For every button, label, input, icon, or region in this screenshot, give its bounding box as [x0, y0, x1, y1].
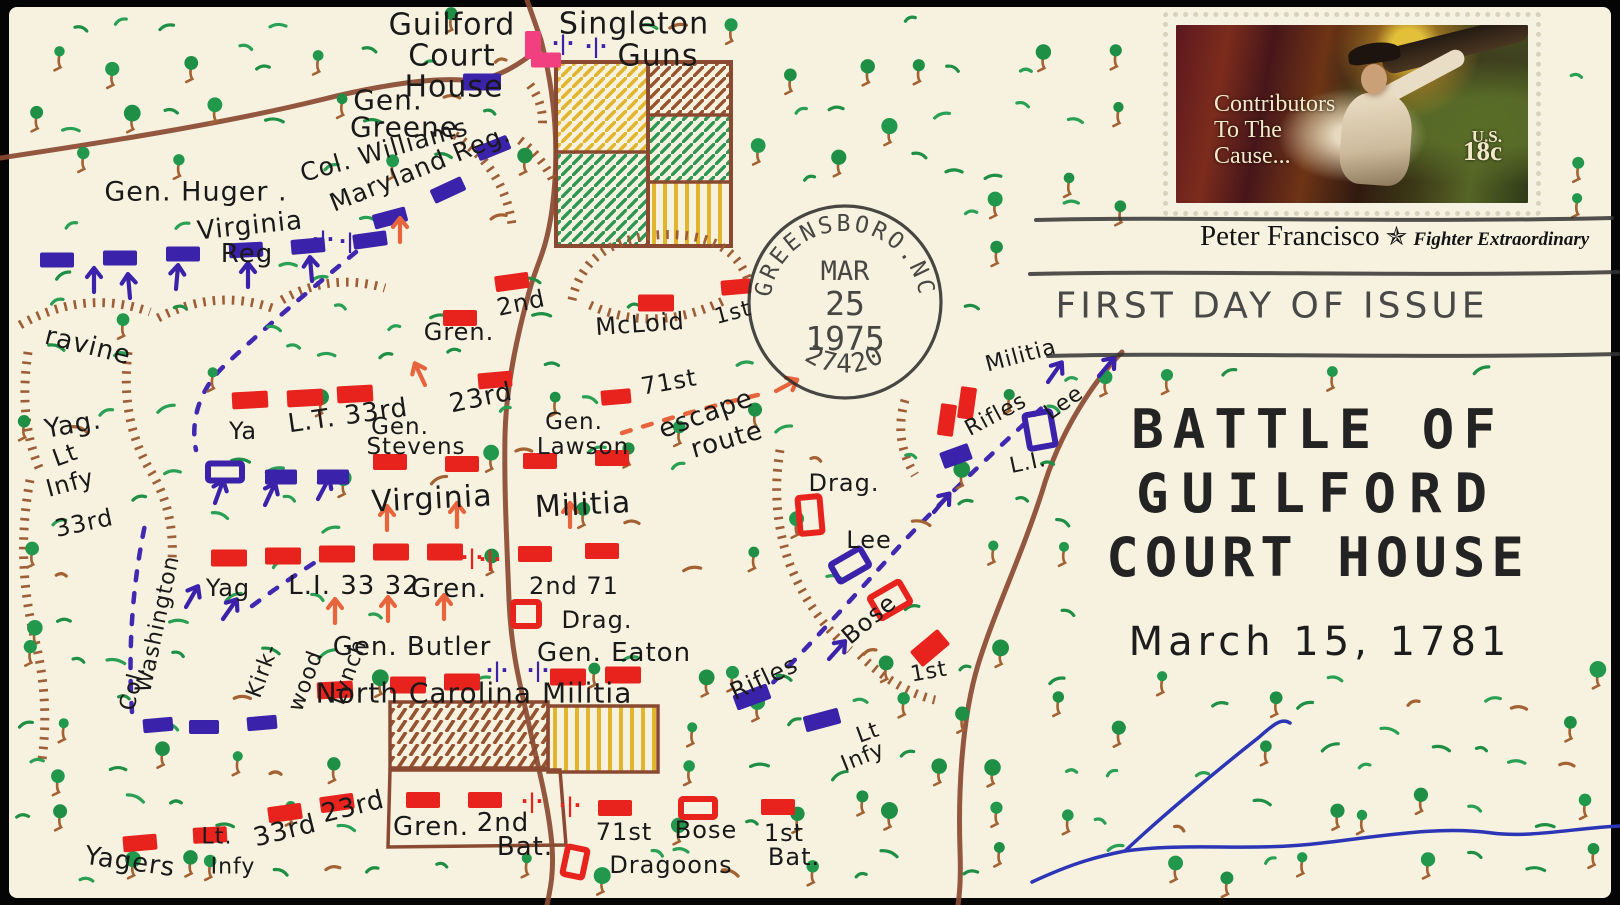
tree-icon	[1357, 810, 1368, 821]
postmark-day: 25	[825, 284, 865, 323]
tree-icon	[1220, 871, 1233, 884]
tree-icon	[1421, 852, 1435, 866]
tree-icon	[726, 666, 739, 679]
unit-marker-red	[337, 385, 374, 404]
first-day-slogan: FIRST DAY OF ISSUE	[1056, 286, 1489, 327]
tree-icon	[594, 867, 611, 884]
unit-marker-red	[477, 371, 512, 390]
tree-icon	[994, 842, 1005, 853]
tree-icon	[831, 150, 846, 165]
unit-marker-blue	[166, 247, 200, 262]
tree-icon	[988, 192, 1003, 207]
tree-icon	[77, 147, 89, 159]
tree-icon	[751, 138, 766, 153]
tree-icon	[54, 46, 64, 56]
tree-icon	[725, 18, 738, 31]
tree-icon	[931, 758, 947, 774]
tree-icon	[856, 790, 868, 802]
unit-marker-red	[317, 681, 354, 700]
unit-marker-red	[232, 391, 269, 410]
tree-icon	[990, 241, 1003, 254]
postmark-month: MAR	[821, 256, 871, 287]
cachet-title-line2: GUILFORD	[1038, 462, 1598, 526]
cachet-date: March 15, 1781	[1129, 619, 1512, 665]
unit-marker-red	[605, 667, 641, 684]
cachet-title-line3: COURT HOUSE	[1038, 526, 1598, 590]
tree-icon	[233, 751, 243, 761]
unit-marker-blue	[229, 242, 264, 259]
tree-icon	[1112, 721, 1126, 735]
tree-icon	[1297, 852, 1307, 862]
cachet-title-line1: BATTLE OF	[1038, 398, 1598, 462]
tree-icon	[576, 502, 590, 516]
tree-icon	[184, 56, 198, 70]
stamp-artwork: Contributors To The Cause... U.S. 18c	[1176, 25, 1528, 203]
artillery-icon: ·|·	[552, 31, 575, 55]
postage-stamp: Contributors To The Cause... U.S. 18c	[1163, 12, 1541, 216]
tree-icon	[1053, 691, 1064, 702]
tree-icon	[1414, 788, 1428, 802]
tree-icon	[1161, 369, 1173, 381]
unit-marker-red	[444, 674, 480, 691]
tree-icon	[386, 154, 399, 167]
stamp-title: Contributors To The Cause...	[1214, 91, 1335, 169]
tree-icon	[51, 769, 65, 783]
tree-icon	[27, 620, 43, 636]
unit-marker-blue	[40, 253, 74, 268]
stamp-denomination: U.S. 18c	[1463, 129, 1502, 159]
tree-icon	[155, 741, 170, 756]
unit-marker-blue	[463, 74, 501, 91]
tree-icon	[1572, 157, 1584, 169]
tree-icon	[207, 97, 222, 112]
stamp-subject-name: Peter Francisco	[1200, 220, 1380, 252]
tree-icon	[1564, 716, 1577, 729]
unit-marker-red	[287, 389, 324, 408]
artillery-icon: ·|·	[339, 229, 362, 253]
tree-icon	[550, 392, 561, 403]
unit-marker-red	[406, 792, 440, 808]
postmark-year: 1975	[805, 319, 884, 358]
stamp-title-line1: Contributors	[1214, 91, 1335, 117]
tree-icon	[522, 853, 532, 863]
tree-icon	[372, 669, 389, 686]
tree-icon	[881, 802, 898, 819]
tree-icon	[1168, 856, 1183, 871]
artillery-icon: ·|·	[312, 227, 335, 251]
tree-icon	[784, 69, 797, 82]
tree-icon	[1572, 193, 1582, 203]
unit-marker-red	[193, 826, 228, 844]
unit-marker-red	[720, 278, 751, 296]
unit-marker-red	[550, 669, 586, 686]
tree-icon	[984, 759, 1001, 776]
tree-icon	[1270, 691, 1283, 704]
figure-face	[1361, 64, 1387, 94]
first-day-cover: ·|··|··|··|··|··|··|··|··|··|· GREENSBOR…	[0, 0, 1620, 905]
tree-icon	[313, 50, 324, 61]
tree-icon	[337, 94, 348, 105]
tree-icon	[1062, 809, 1074, 821]
unit-marker-red	[595, 450, 629, 466]
tree-icon	[1330, 804, 1344, 818]
unit-marker-red	[585, 543, 619, 559]
unit-marker-red	[373, 454, 407, 470]
unit-marker-red	[598, 800, 632, 816]
unit-marker-red	[445, 456, 479, 472]
unit-marker-red	[122, 834, 157, 853]
tree-icon	[1588, 843, 1600, 855]
tree-icon	[1110, 44, 1122, 56]
unit-marker-blue	[265, 470, 297, 485]
unit-marker-red	[427, 544, 463, 561]
tree-icon	[105, 62, 119, 76]
tree-icon	[24, 640, 37, 653]
tree-icon	[1064, 173, 1075, 184]
tree-icon	[445, 7, 458, 20]
tree-icon	[748, 547, 759, 558]
tree-icon	[59, 718, 69, 728]
tree-icon	[483, 445, 499, 461]
unit-marker-red	[600, 388, 631, 406]
unit-marker-red	[373, 544, 409, 561]
tree-icon	[1113, 102, 1123, 112]
tree-icon	[913, 59, 925, 71]
tree-icon	[1327, 366, 1338, 377]
tree-icon	[861, 59, 875, 73]
tree-icon	[806, 860, 818, 872]
stamp-title-line2: To The	[1214, 117, 1335, 143]
tree-icon	[18, 415, 30, 427]
unit-marker-red	[638, 295, 674, 312]
farm-fields-top	[556, 62, 731, 246]
tree-icon	[588, 663, 600, 675]
tree-icon	[517, 148, 533, 164]
tree-icon	[1004, 389, 1015, 400]
tree-icon	[1036, 44, 1051, 59]
tree-icon	[988, 540, 998, 550]
tree-icon	[327, 757, 340, 770]
artillery-icon: ·|·	[585, 34, 608, 58]
unit-marker-red	[319, 546, 355, 563]
unit-marker-red	[518, 546, 552, 562]
unit-marker-blue	[189, 720, 219, 734]
artillery-icon: ·|·	[486, 658, 509, 682]
tree-icon	[53, 804, 67, 818]
artillery-icon: ·|·	[559, 793, 582, 817]
artillery-icon: ·|·	[521, 789, 544, 813]
tree-icon	[125, 851, 141, 867]
tree-icon	[687, 722, 697, 732]
tree-icon	[683, 760, 695, 772]
stamp-title-line3: Cause...	[1214, 143, 1335, 169]
tree-icon	[183, 850, 198, 865]
tree-icon	[881, 118, 897, 134]
unit-marker-blue	[103, 251, 137, 266]
tree-icon	[673, 421, 686, 434]
unit-marker-red	[390, 677, 426, 694]
artillery-icon: ·|·	[527, 658, 550, 682]
stamp-subject-epithet: Fighter Extraordinary	[1413, 229, 1589, 250]
tree-icon	[897, 692, 909, 704]
unit-marker-red	[761, 799, 795, 815]
stamp-value: 18c	[1463, 144, 1502, 159]
unit-marker-red	[443, 310, 477, 326]
tree-icon	[992, 639, 1009, 656]
tree-icon	[699, 669, 715, 685]
tree-icon	[208, 367, 218, 377]
figure-torso	[1338, 90, 1414, 187]
tree-icon	[1590, 661, 1607, 678]
tree-icon	[1260, 740, 1272, 752]
unit-marker-blue	[246, 715, 277, 732]
tree-icon	[955, 707, 969, 721]
tree-icon	[117, 313, 130, 326]
tree-icon	[990, 802, 1002, 814]
stamp-caption: Peter Francisco✯Fighter Extraordinary	[1200, 220, 1580, 253]
tree-icon	[1579, 794, 1592, 807]
tree-icon	[173, 154, 184, 165]
unit-marker-blue	[142, 717, 173, 734]
tree-icon	[204, 855, 216, 867]
tree-icon	[879, 656, 894, 671]
tree-icon	[1157, 671, 1167, 681]
unit-marker-red	[523, 453, 557, 469]
cachet-title: BATTLE OF GUILFORD COURT HOUSE	[1038, 398, 1598, 590]
tree-icon	[30, 106, 43, 119]
artillery-icon: ·|·	[479, 547, 502, 571]
tree-icon	[1114, 200, 1126, 212]
tree-icon	[25, 542, 39, 556]
unit-marker-red	[265, 548, 301, 565]
unit-marker-red	[211, 550, 247, 567]
bicentennial-star-icon: ✯	[1386, 222, 1408, 252]
unit-marker-red	[468, 792, 502, 808]
tree-icon	[748, 403, 762, 417]
tree-icon	[124, 105, 141, 122]
